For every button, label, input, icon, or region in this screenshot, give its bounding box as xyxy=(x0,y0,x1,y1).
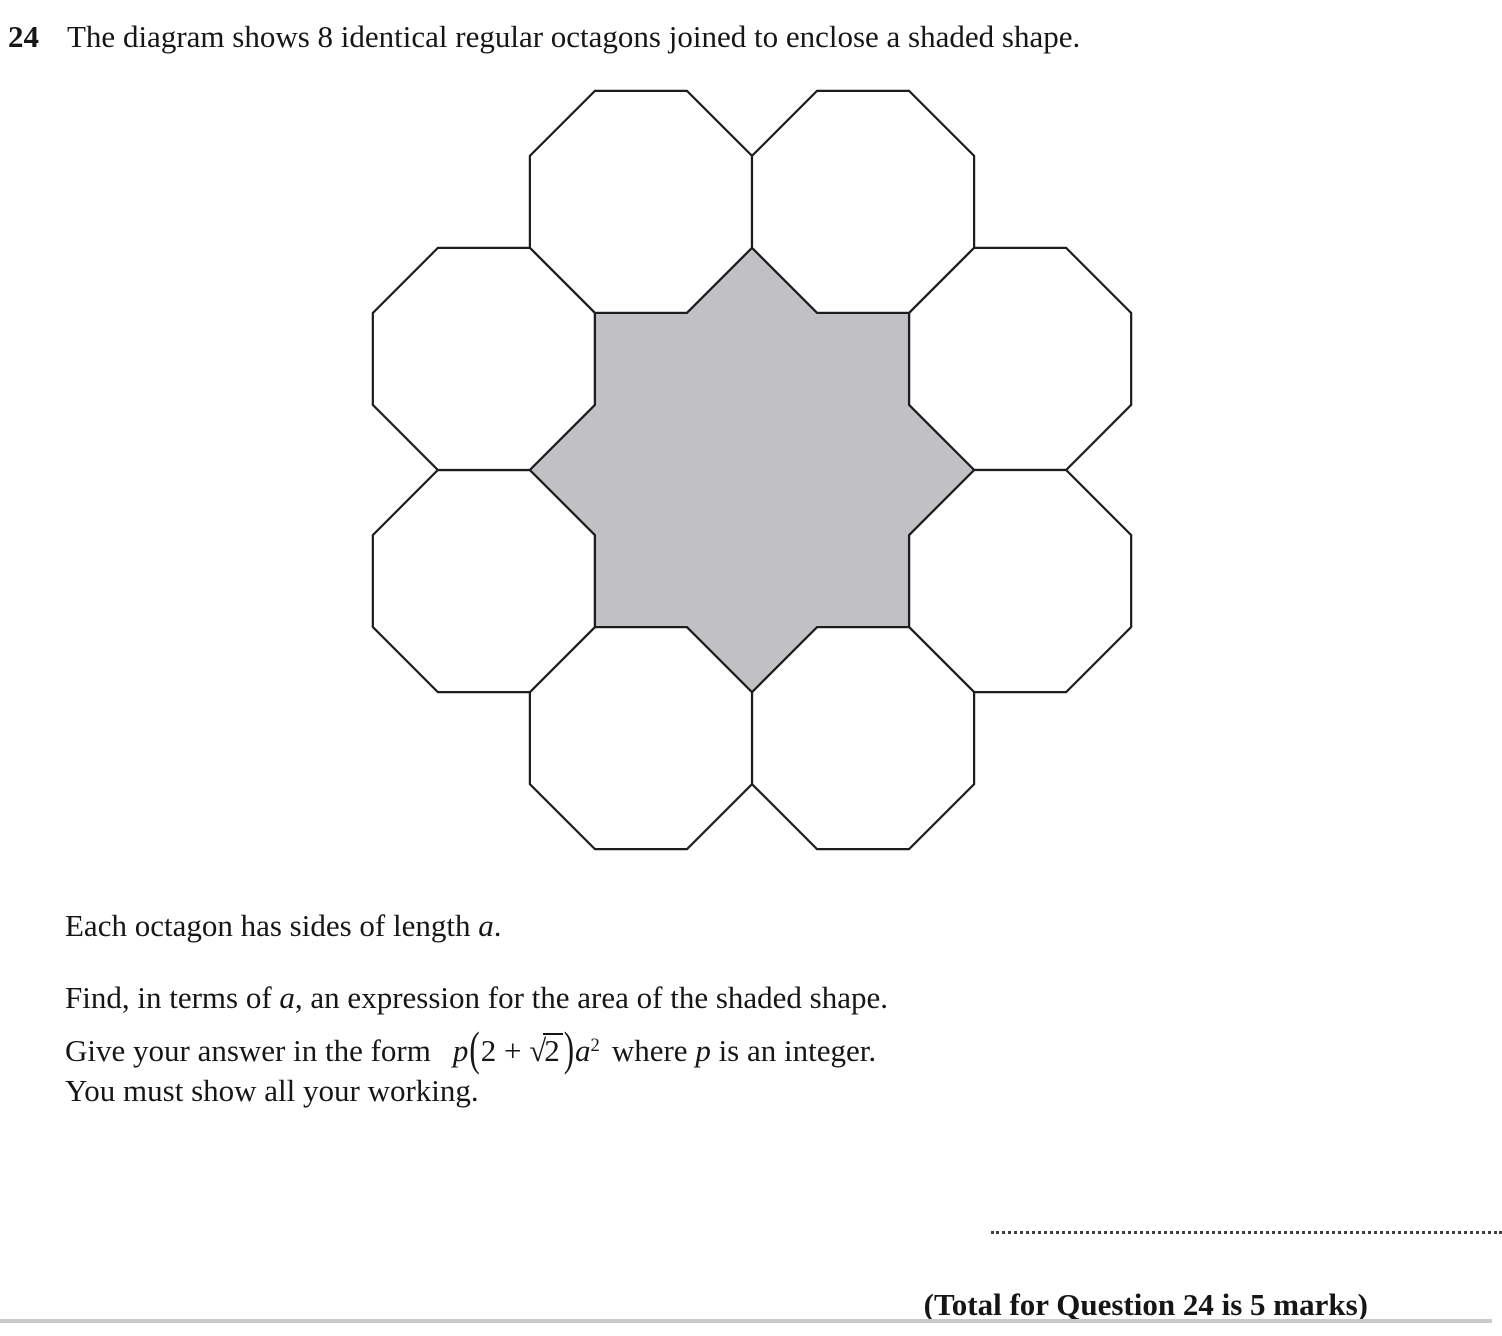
side-length-period: . xyxy=(494,908,502,943)
find-area-tail: , an expression for the area of the shad… xyxy=(295,980,888,1015)
answer-form-tail: is an integer. xyxy=(711,1033,876,1068)
octagon-3 xyxy=(909,248,1131,470)
formula-two-plus: 2 + xyxy=(481,1033,529,1068)
exam-page: { "question": { "number": "24", "prompt"… xyxy=(0,0,1502,1336)
octagon-4 xyxy=(909,470,1131,692)
octagon-7 xyxy=(373,470,595,692)
statement-find-area: Find, in terms of a, an expression for t… xyxy=(65,979,888,1016)
octagon-5 xyxy=(752,627,974,849)
total-marks-label: (Total for Question 24 is 5 marks) xyxy=(924,1287,1368,1323)
question-text: The diagram shows 8 identical regular oc… xyxy=(67,19,1080,54)
octagons-diagram xyxy=(0,0,1502,1336)
octagon-2 xyxy=(752,91,974,313)
statement-show-working: You must show all your working. xyxy=(65,1072,479,1109)
answer-line xyxy=(991,1231,1502,1234)
page-bottom-divider xyxy=(0,1319,1492,1323)
sqrt-radicand: 2 xyxy=(543,1033,563,1066)
answer-form-lead: Give your answer in the form xyxy=(65,1033,431,1068)
find-area-var-a: a xyxy=(279,980,295,1015)
formula-coeff-p: p xyxy=(453,1033,469,1068)
question-row: 24The diagram shows 8 identical regular … xyxy=(8,18,1080,55)
find-area-lead: Find, in terms of xyxy=(65,980,279,1015)
statement-side-length: Each octagon has sides of length a. xyxy=(65,907,501,944)
question-number: 24 xyxy=(8,19,39,54)
formula-close-paren: ) xyxy=(563,1019,575,1077)
formula-exponent: 2 xyxy=(591,1035,600,1056)
side-length-var-a: a xyxy=(478,908,494,943)
answer-form-where: where xyxy=(612,1033,695,1068)
formula-open-paren: ( xyxy=(468,1019,480,1077)
statement-answer-form: Give your answer in the formp(2 + √2)a2w… xyxy=(65,1032,876,1069)
side-length-text: Each octagon has sides of length xyxy=(65,908,478,943)
octagon-8 xyxy=(373,248,595,470)
shaded-star xyxy=(530,248,974,692)
octagon-1 xyxy=(530,91,752,313)
where-var-p: p xyxy=(695,1033,711,1068)
octagon-6 xyxy=(530,627,752,849)
formula-variable-a: a xyxy=(575,1033,591,1068)
